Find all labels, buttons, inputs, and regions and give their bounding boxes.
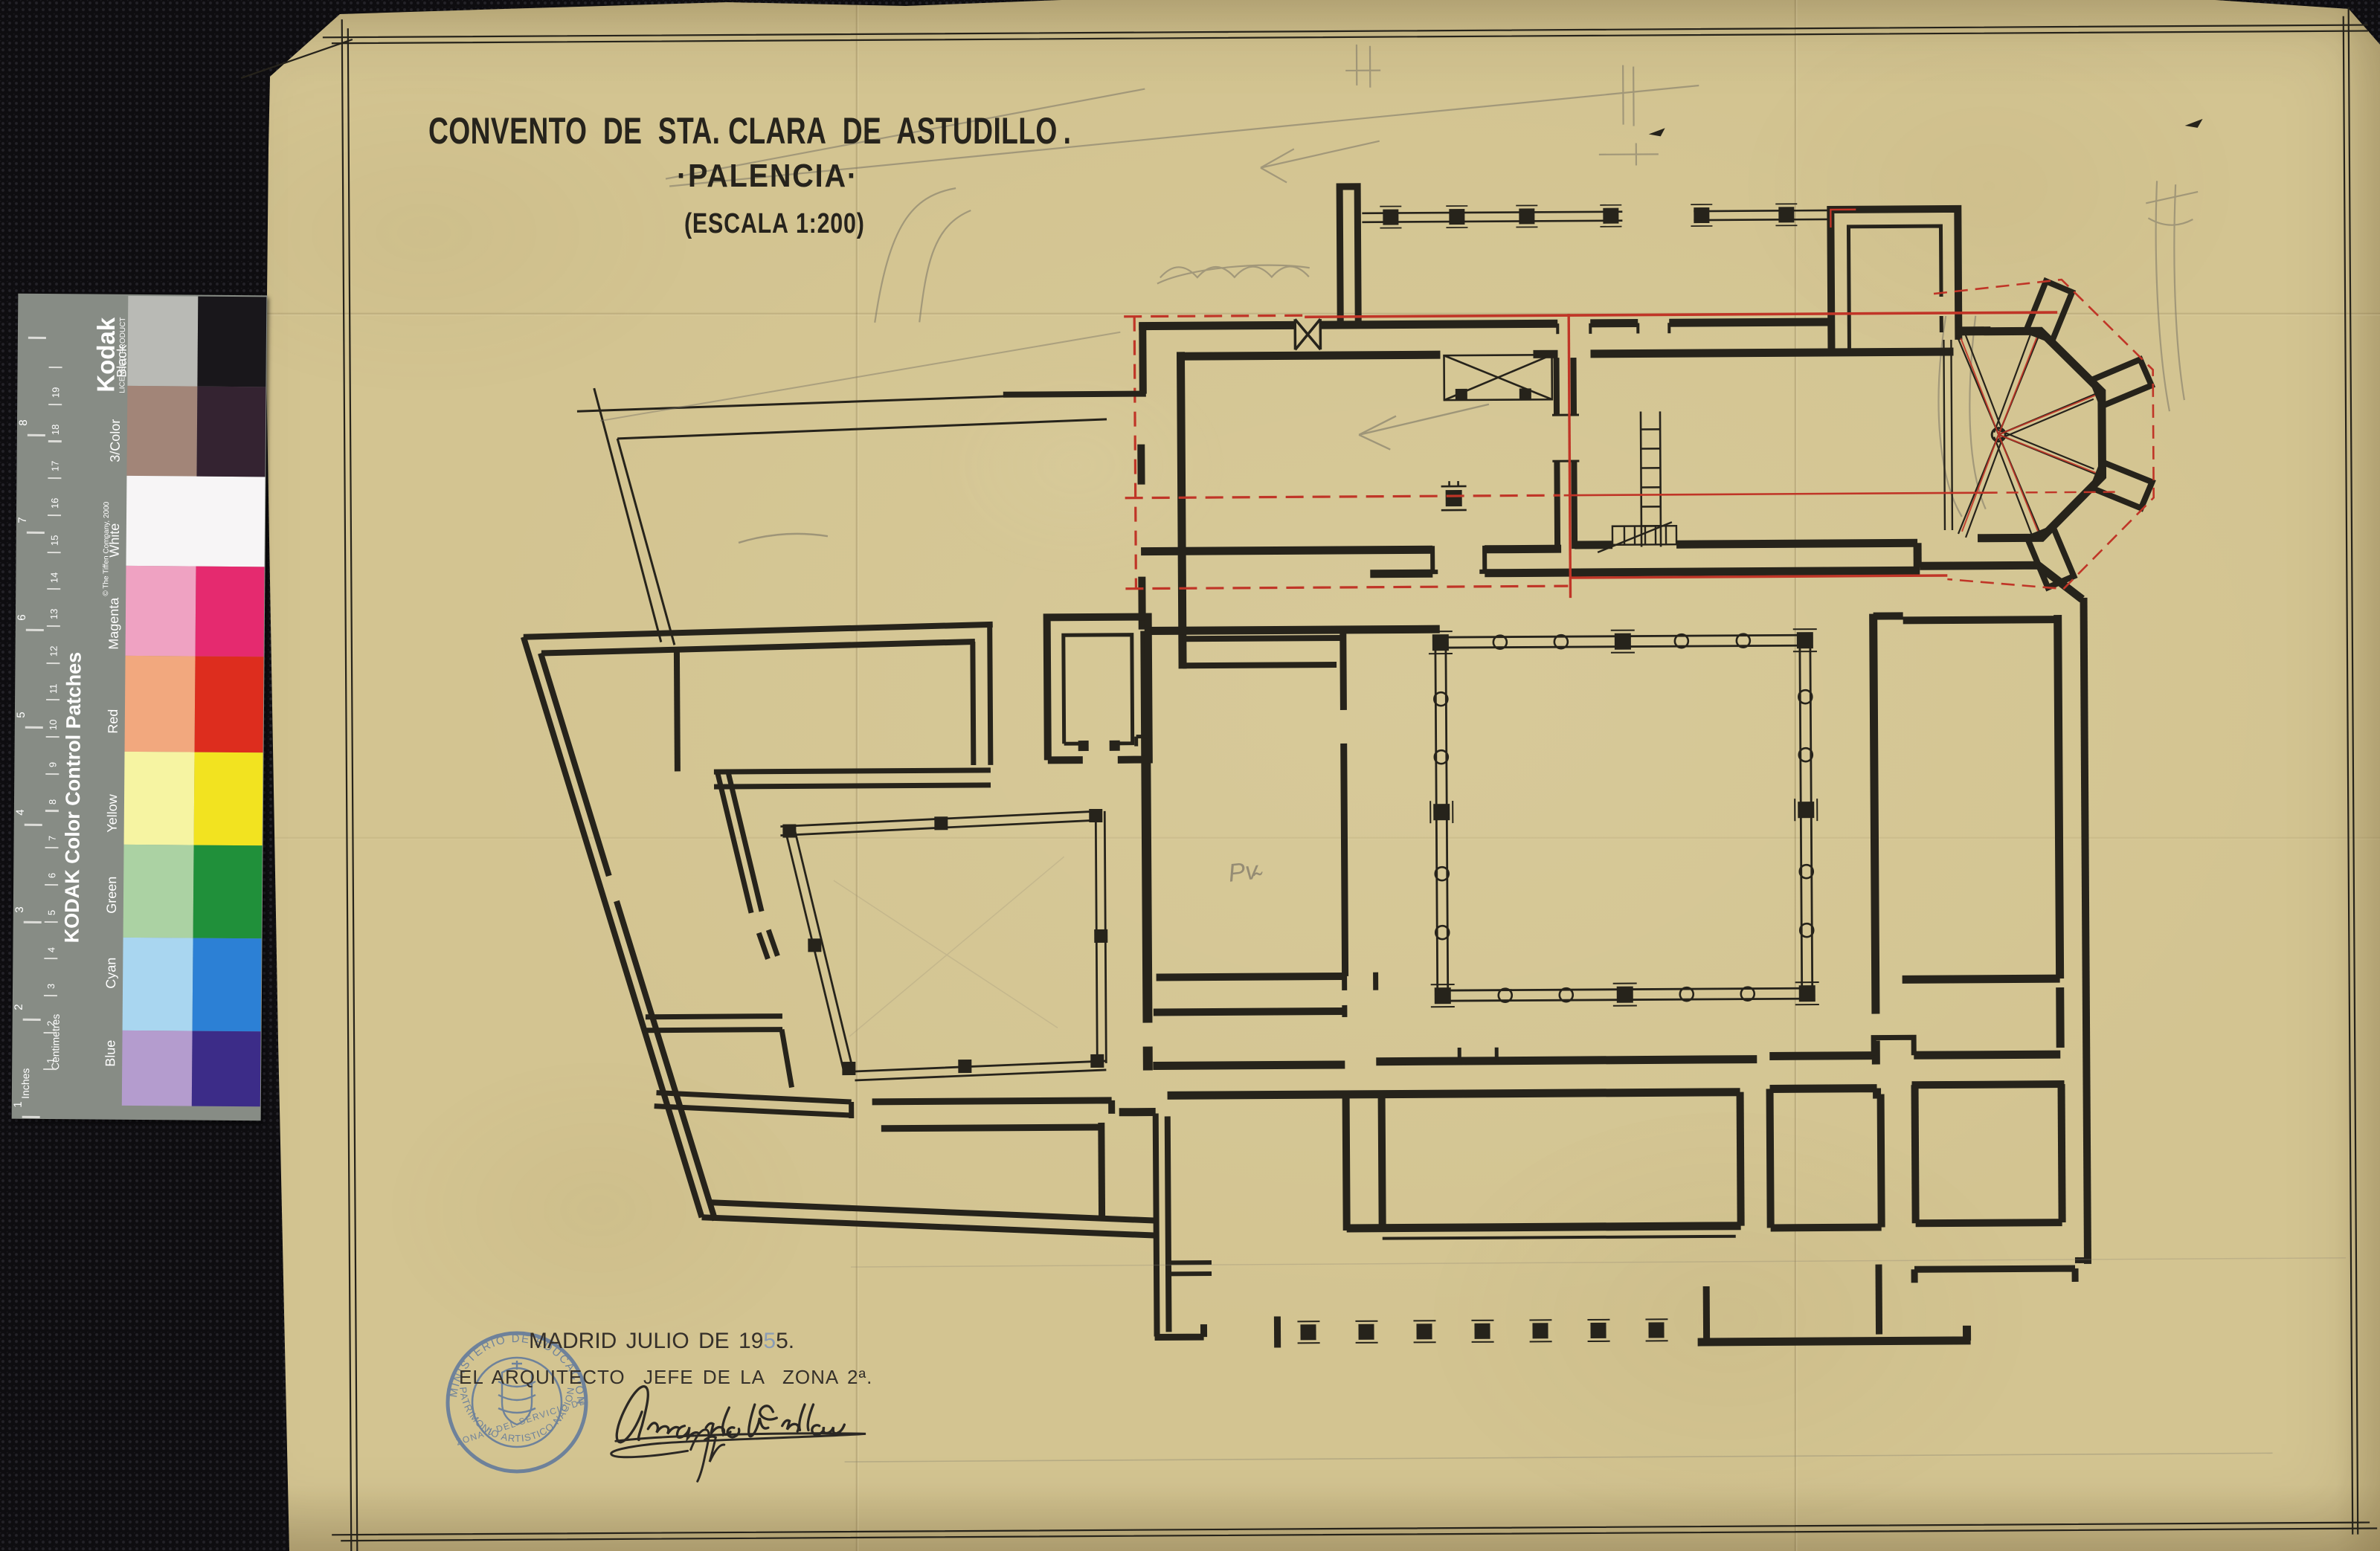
svg-text:Pv̴: Pv̴: [1227, 856, 1265, 888]
svg-text:PATRIMONIO ARTISTICO NACIONAL: PATRIMONIO ARTISTICO NACIONAL: [0, 0, 576, 1444]
svg-text:MINISTERIO DE EDUCACION NACION: MINISTERIO DE EDUCACION NACIONAL: [0, 0, 587, 1406]
